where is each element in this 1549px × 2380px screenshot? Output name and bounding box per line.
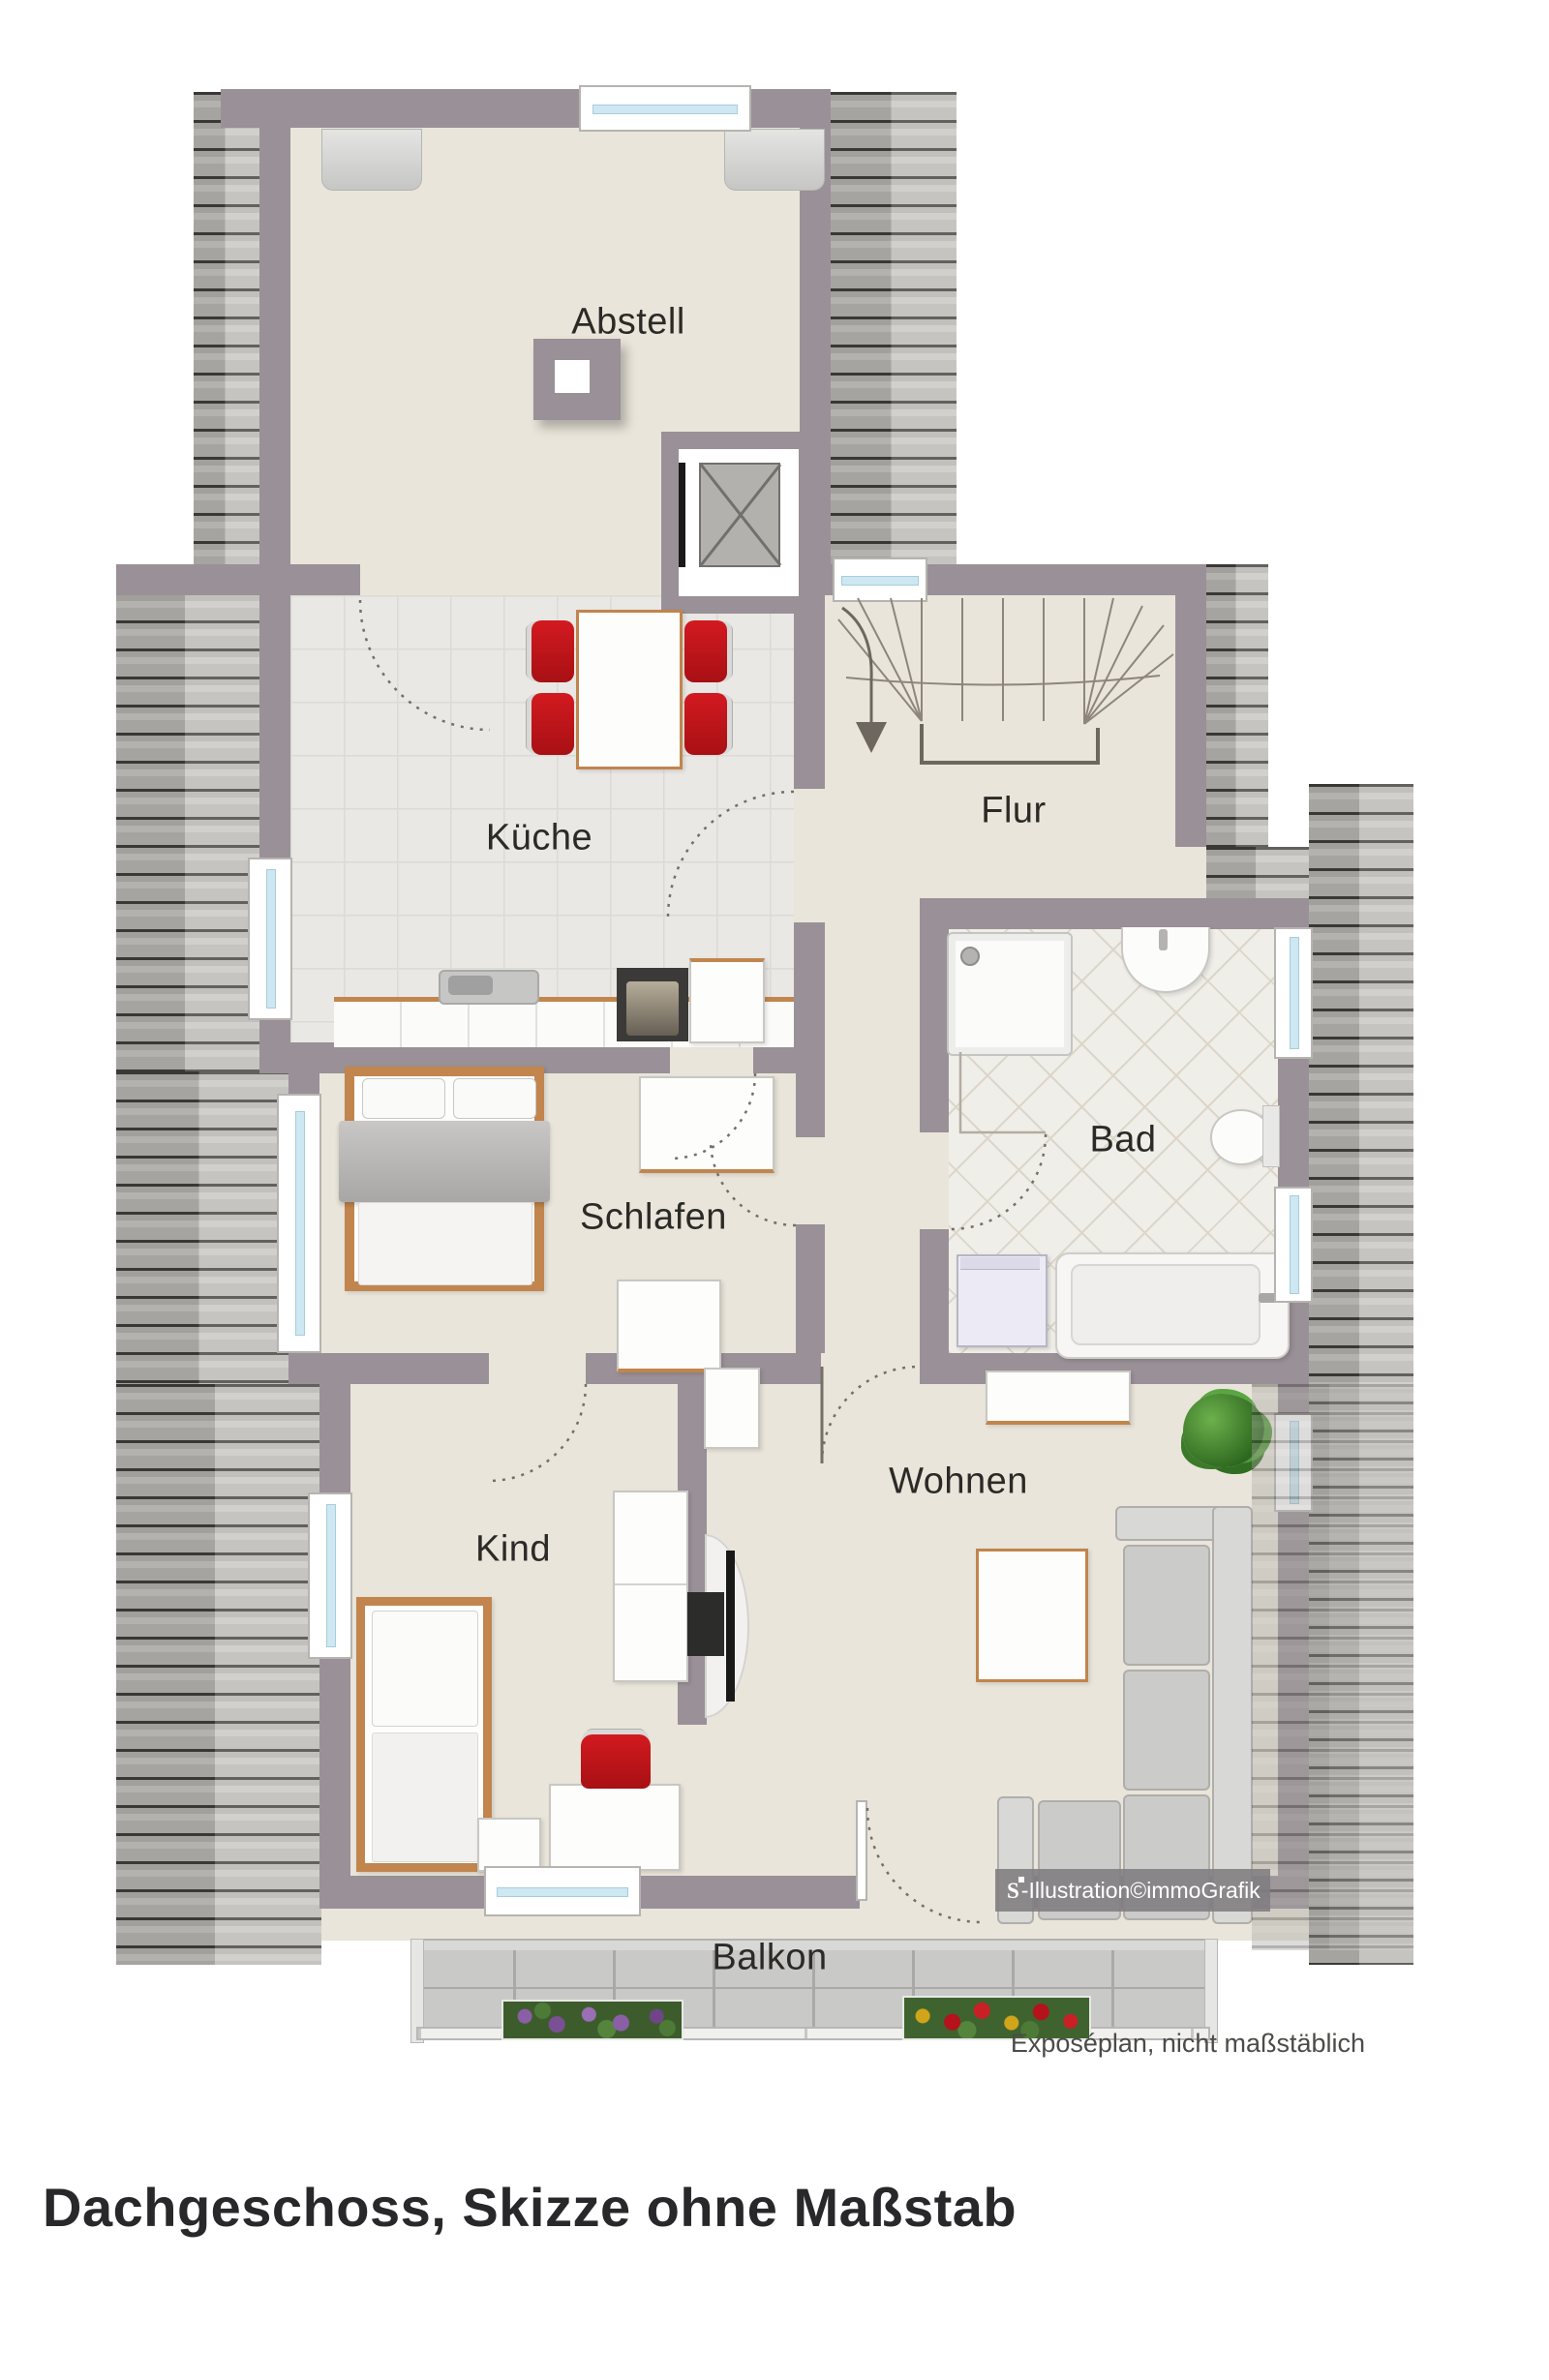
room-label-kueche: Küche	[486, 818, 592, 859]
room-label-schlafen: Schlafen	[580, 1197, 727, 1239]
shower-glass-partition	[960, 1052, 1046, 1132]
elevator-x-icon	[701, 465, 780, 565]
plan-line-overlay	[0, 0, 1549, 2380]
stair-well-outline	[922, 724, 1098, 763]
room-label-kind: Kind	[475, 1529, 551, 1571]
room-label-wohnen: Wohnen	[889, 1461, 1028, 1503]
stair-direction-arrow	[856, 722, 887, 753]
illustrator-watermark: S-Illustration©immoGrafik	[995, 1869, 1270, 1912]
room-label-abstell: Abstell	[571, 302, 685, 344]
room-label-bad: Bad	[1089, 1120, 1156, 1161]
watermark-text: -Illustration©immoGrafik	[1021, 1878, 1260, 1903]
stair-direction-line	[842, 608, 871, 722]
sparkasse-s-icon: S	[1007, 1879, 1019, 1903]
roof-slope-overlay	[1252, 1384, 1413, 1950]
plan-caption: Exposéplan, nicht maßstäblich	[968, 2029, 1365, 2059]
room-label-balkon: Balkon	[712, 1938, 827, 1979]
door-swing-arcs	[360, 600, 1046, 1922]
floor-plan: Abstell Küche Flur Bad Schlafen Wohnen K…	[0, 0, 1549, 2380]
staircase-treads	[838, 598, 1173, 724]
page-title: Dachgeschoss, Skizze ohne Maßstab	[43, 2176, 1017, 2239]
room-label-flur: Flur	[981, 791, 1046, 832]
